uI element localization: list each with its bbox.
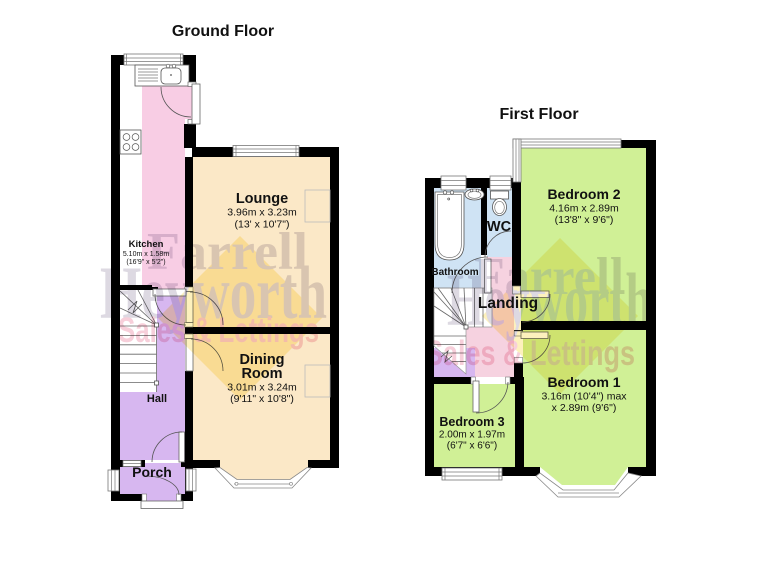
svg-text:Room: Room <box>241 366 282 382</box>
svg-text:Porch: Porch <box>132 464 172 480</box>
svg-text:Bedroom 3: Bedroom 3 <box>439 415 504 429</box>
svg-text:Lounge: Lounge <box>236 191 288 207</box>
svg-text:Bathroom: Bathroom <box>431 267 478 278</box>
svg-text:4.16m x 2.89m: 4.16m x 2.89m <box>549 203 619 215</box>
svg-text:3.16m (10'4") max: 3.16m (10'4") max <box>541 391 627 403</box>
svg-text:3.96m x 3.23m: 3.96m x 3.23m <box>227 207 297 219</box>
svg-text:Ground Floor: Ground Floor <box>172 23 274 40</box>
svg-text:(13'8" x 9'6"): (13'8" x 9'6") <box>555 214 614 226</box>
svg-text:Sales & Lettings: Sales & Lettings <box>118 311 319 350</box>
svg-text:(9'11" x 10'8"): (9'11" x 10'8") <box>230 393 294 405</box>
svg-text:2.00m x 1.97m: 2.00m x 1.97m <box>439 430 505 441</box>
svg-text:Bedroom 2: Bedroom 2 <box>547 186 620 202</box>
svg-text:Kitchen: Kitchen <box>129 239 164 250</box>
svg-text:5.10m x 1.58m: 5.10m x 1.58m <box>123 251 169 258</box>
svg-text:(6'7" x 6'6"): (6'7" x 6'6") <box>447 441 497 452</box>
svg-text:Hall: Hall <box>147 393 167 405</box>
svg-text:(16'9" x 5'2"): (16'9" x 5'2") <box>126 259 165 266</box>
svg-text:Bedroom 1: Bedroom 1 <box>547 374 620 390</box>
svg-text:(13' x 10'7"): (13' x 10'7") <box>234 219 289 231</box>
svg-text:WC: WC <box>487 219 512 235</box>
svg-text:x 2.89m (9'6"): x 2.89m (9'6") <box>552 402 617 414</box>
svg-text:First Floor: First Floor <box>499 106 578 123</box>
svg-text:3.01m x 3.24m: 3.01m x 3.24m <box>227 382 297 394</box>
svg-text:Landing: Landing <box>478 295 538 312</box>
svg-text:Sales & Lettings: Sales & Lettings <box>425 334 635 373</box>
